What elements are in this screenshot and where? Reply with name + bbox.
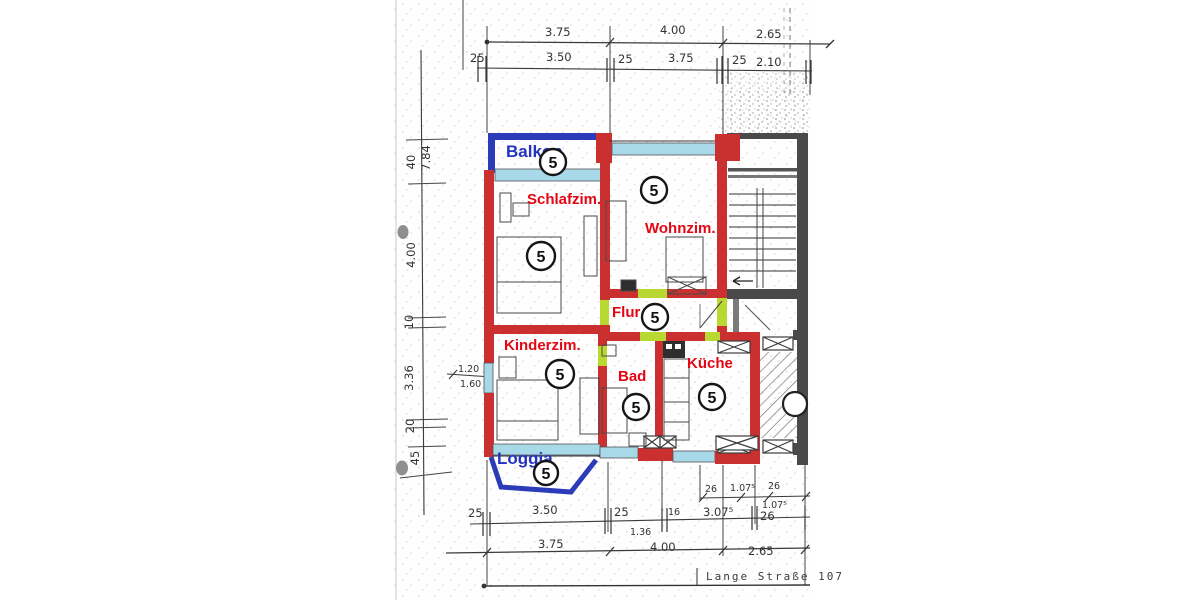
door-wohnzimmer (638, 289, 667, 298)
dim-left-2: 4.00 (404, 242, 418, 268)
dim-top-outer-2: 2.65 (756, 27, 782, 41)
unit-circle-bad: 5 (623, 394, 649, 420)
room-label-schlafzimmer: Schlafzim. (527, 191, 601, 208)
kitchen-appliance-block (663, 341, 685, 358)
svg-text:5: 5 (556, 367, 565, 384)
wall-schlaf-kinder (484, 325, 610, 334)
window-kueche (673, 451, 715, 462)
dim-top-inner-4: 25 (732, 53, 747, 67)
hole-punch-mark (398, 225, 409, 239)
door-entry (717, 298, 727, 326)
dim-left-0: 7.84 (419, 145, 433, 171)
dim-bottom-mid-2: 25 (614, 505, 629, 519)
dim-left-inner-0: 1.20 (458, 364, 479, 375)
dim-top-inner-0: 25 (470, 51, 485, 65)
wall-pier (715, 134, 740, 161)
dim-left-4: 3.36 (402, 365, 416, 391)
svg-text:5: 5 (549, 155, 558, 172)
dim-bottom-outer-0: 3.75 (538, 537, 564, 551)
dim-bottom-mid-4: 16 (668, 507, 680, 518)
dim-top-inner-5: 2.10 (756, 55, 782, 69)
wall-right (717, 160, 727, 298)
neighbour-unit-circle (783, 392, 807, 416)
room-label-flur: Flur (612, 304, 640, 321)
wall-kinder-right (598, 334, 607, 346)
wall-balcony-left (488, 133, 495, 173)
wall-left (484, 393, 494, 457)
unit-circle-kinderzimmer: 5 (546, 360, 574, 388)
unit-circle-schlafzimmer: 5 (527, 242, 555, 270)
room-label-kinderzimmer: Kinderzim. (504, 337, 581, 354)
room-label-kueche: Küche (687, 355, 733, 372)
wall-kueche-top (720, 332, 752, 341)
svg-text:5: 5 (650, 183, 659, 200)
dim-bottom-mid-5: 3.07⁵ (703, 505, 734, 519)
svg-text:5: 5 (537, 249, 546, 266)
unit-circle-loggia: 5 (534, 461, 558, 485)
wall-pier (638, 448, 673, 461)
dim-top-outer-0: 3.75 (545, 25, 571, 39)
wall-middle (600, 152, 610, 300)
floor-plan-scan: 3.75 4.00 2.65 25 3.50 25 3.75 25 2.10 (0, 0, 1200, 600)
dim-bottom-outer-2: 2.65 (748, 544, 774, 558)
street-address-label: Lange Straße 107 (706, 570, 844, 583)
dim-bottom-mid-1: 3.50 (532, 503, 558, 517)
dim-top-outer-1: 4.00 (660, 23, 686, 37)
dim-left-1: 40 (404, 155, 418, 170)
dim-bottom-outer-1: 4.00 (650, 540, 676, 554)
dim-bottom-ir-1: 1.07⁵ (730, 483, 755, 494)
dim-bottom-ir-2: 26 (768, 481, 780, 492)
wall-left (484, 170, 494, 363)
dim-bottom-mid-6: 26 (760, 509, 775, 523)
dim-bottom-mid-3: 1.36 (630, 527, 651, 538)
svg-text:5: 5 (651, 310, 660, 327)
window-kinderzimmer (484, 363, 493, 393)
dim-left-inner-1: 1.60 (460, 379, 481, 390)
dim-left-6: 45 (408, 451, 422, 466)
svg-text:5: 5 (708, 390, 717, 407)
window-bad (600, 447, 638, 458)
hole-punch-mark (396, 461, 408, 476)
svg-text:5: 5 (632, 400, 641, 417)
svg-text:5: 5 (542, 466, 551, 483)
dim-bottom-ir-0: 26 (705, 484, 717, 495)
room-label-bad: Bad (618, 368, 646, 385)
unit-circle-kueche: 5 (699, 384, 725, 410)
wall-flur-bottom (666, 332, 705, 341)
dim-top-inner-2: 25 (618, 52, 633, 66)
door-kueche (705, 332, 720, 341)
dim-bottom-mid-0: 25 (468, 506, 483, 520)
floorplan-svg: 3.75 4.00 2.65 25 3.50 25 3.75 25 2.10 (0, 0, 1200, 600)
wall-balcony-top (488, 133, 608, 140)
unit-circle-flur: 5 (642, 304, 668, 330)
dim-left-5: 20 (403, 419, 417, 434)
door-bad (640, 332, 666, 341)
dim-left-3: 10 (402, 315, 416, 330)
window-wohnzimmer (612, 143, 717, 155)
room-label-wohnzimmer: Wohnzim. (645, 220, 716, 237)
dim-top-inner-3: 3.75 (668, 51, 694, 65)
unit-circle-wohnzimmer: 5 (641, 177, 667, 203)
door-schlafzimmer (600, 300, 609, 325)
unit-circle-balkon: 5 (540, 149, 566, 175)
dim-top-inner-1: 3.50 (546, 50, 572, 64)
